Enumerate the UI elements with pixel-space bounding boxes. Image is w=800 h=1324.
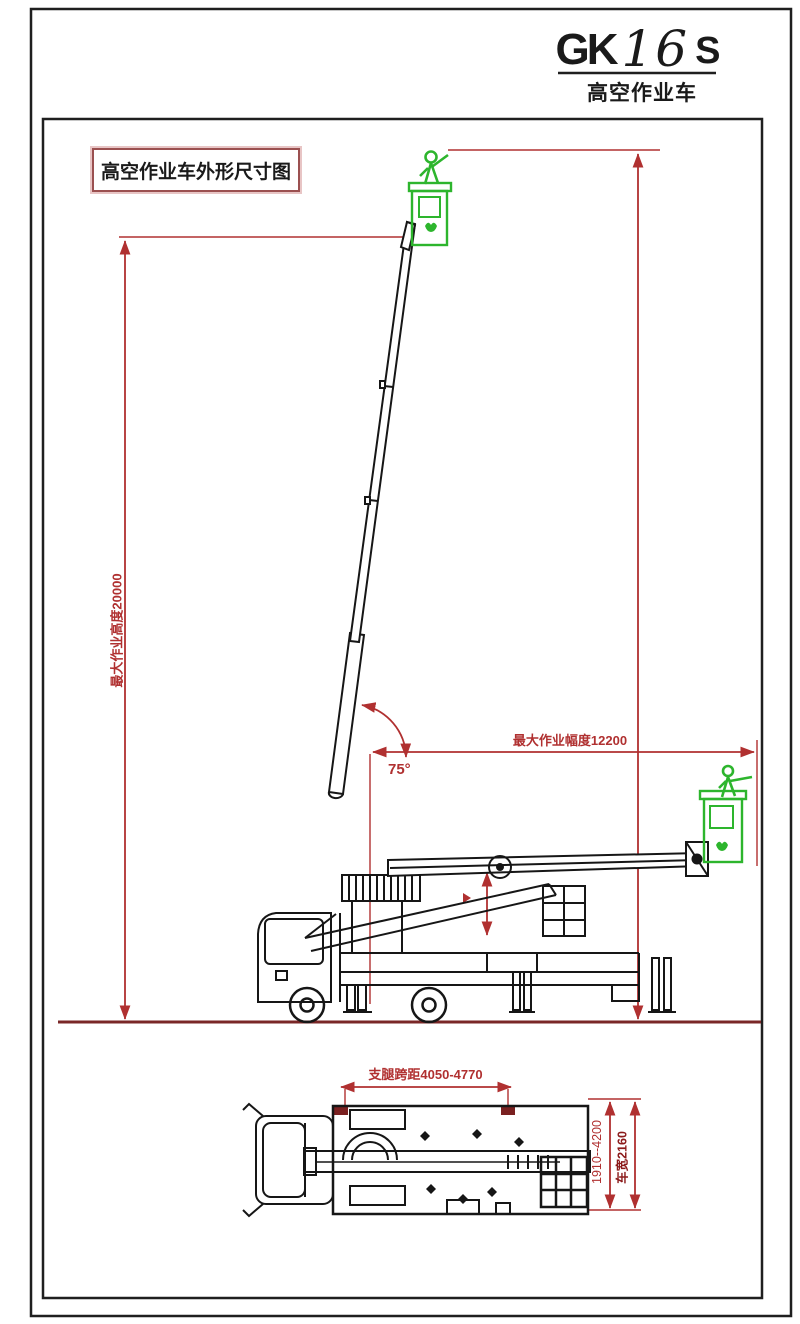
jib-arm	[388, 842, 708, 878]
wheel-rear	[412, 988, 446, 1022]
model-suffix: S	[695, 32, 720, 72]
boom-angle-arc	[362, 705, 406, 757]
outrigger-span-dim-label: 支腿跨距4050-4770	[318, 1064, 533, 1083]
operator-figure-top-icon	[420, 152, 448, 185]
model-designation: GK 16 S	[552, 14, 724, 72]
brand-logo-icon	[716, 842, 728, 851]
plan-view	[243, 1104, 590, 1216]
vehicle-width-dim-label: 车宽2160	[612, 1048, 631, 1268]
drawing-caption: 高空作业车外形尺寸图	[101, 157, 291, 184]
outrigger-pad-left	[334, 1106, 348, 1115]
side-view	[258, 222, 708, 1022]
mirror-arm	[243, 1104, 263, 1116]
main-boom	[329, 222, 415, 798]
model-prefix: GK	[556, 28, 616, 72]
plan-cab	[256, 1116, 333, 1204]
drawing-caption-box: 高空作业车外形尺寸图	[92, 148, 300, 192]
work-baskets	[409, 152, 752, 863]
outrigger-pad-right	[501, 1106, 515, 1115]
max-reach-dim-label: 最大作业幅度12200	[460, 730, 680, 749]
equipment-box	[543, 886, 585, 936]
brand-logo-icon	[425, 223, 437, 232]
max-height-dim-label: 最大作业高度20000	[107, 521, 126, 741]
boom-angle-label: 75°	[388, 761, 411, 778]
turret-ring	[343, 1133, 397, 1160]
width-range-dim-label: 1910--4200	[590, 1042, 604, 1262]
basket-top	[409, 152, 451, 246]
model-number: 16	[622, 26, 690, 72]
mirror-arm	[243, 1204, 263, 1216]
drawing-sheet: GK 16 S 高空作业车 高空作业车外形尺寸图 最大作业高度20000 最大作…	[0, 0, 800, 1324]
model-subtitle: 高空作业车	[566, 77, 718, 107]
dimension-lines	[119, 150, 757, 1210]
